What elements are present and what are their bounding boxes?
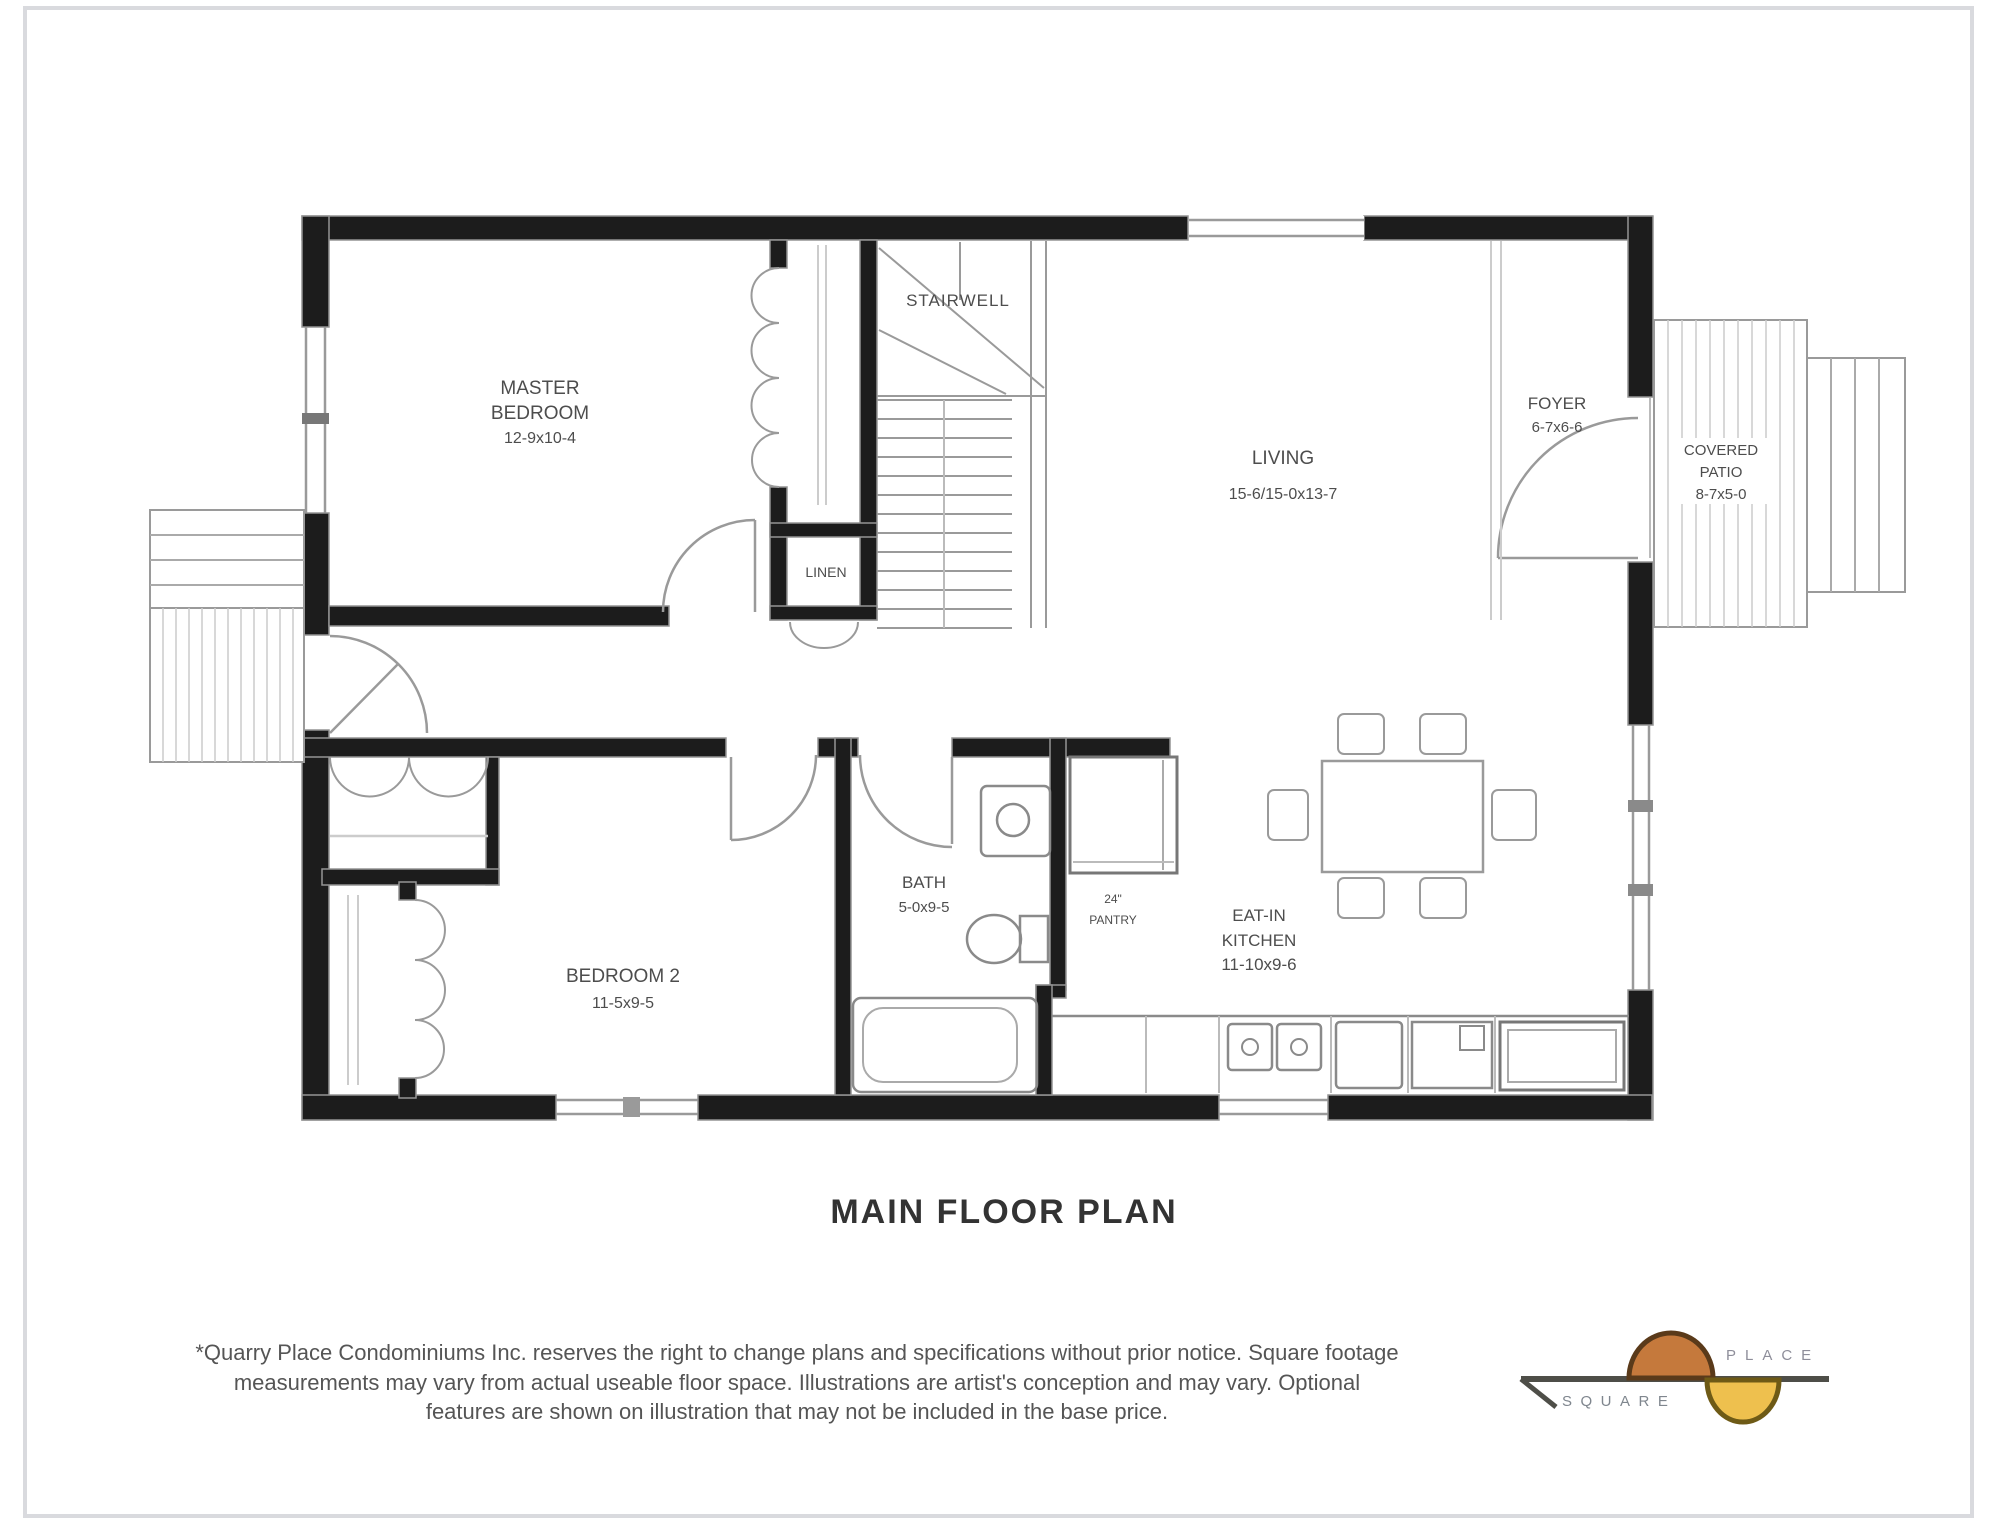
svg-text:BEDROOM 2: BEDROOM 2 [566,966,680,987]
svg-text:5-0x9-5: 5-0x9-5 [899,899,950,916]
svg-text:KITCHEN: KITCHEN [1222,931,1297,950]
svg-text:11-10x9-6: 11-10x9-6 [1221,955,1296,974]
svg-text:11-5x9-5: 11-5x9-5 [592,995,654,1012]
svg-text:LINEN: LINEN [805,564,846,580]
svg-text:measurements may vary from act: measurements may vary from actual useabl… [234,1370,1360,1395]
svg-text:PANTRY: PANTRY [1089,913,1137,927]
svg-text:6-7x6-6: 6-7x6-6 [1532,419,1583,436]
svg-text:features are shown on illustra: features are shown on illustration that … [426,1399,1168,1424]
svg-text:BEDROOM: BEDROOM [491,403,589,424]
svg-text:STAIRWELL: STAIRWELL [906,291,1010,310]
svg-text:COVERED: COVERED [1684,442,1758,459]
svg-text:SQUARE: SQUARE [1562,1393,1676,1410]
svg-text:12-9x10-4: 12-9x10-4 [504,430,576,447]
svg-text:BATH: BATH [902,873,946,892]
svg-text:PATIO: PATIO [1700,464,1743,481]
svg-text:FOYER: FOYER [1528,394,1587,413]
svg-text:8-7x5-0: 8-7x5-0 [1696,486,1747,503]
svg-text:24": 24" [1104,892,1122,906]
svg-text:MAIN FLOOR PLAN: MAIN FLOOR PLAN [830,1193,1177,1231]
svg-text:EAT-IN: EAT-IN [1232,906,1286,925]
svg-text:PLACE: PLACE [1726,1347,1820,1364]
svg-text:LIVING: LIVING [1252,448,1314,469]
svg-text:15-6/15-0x13-7: 15-6/15-0x13-7 [1229,486,1338,503]
svg-text:MASTER: MASTER [500,378,579,399]
svg-text:*Quarry Place Condominiums Inc: *Quarry Place Condominiums Inc. reserves… [195,1340,1398,1365]
